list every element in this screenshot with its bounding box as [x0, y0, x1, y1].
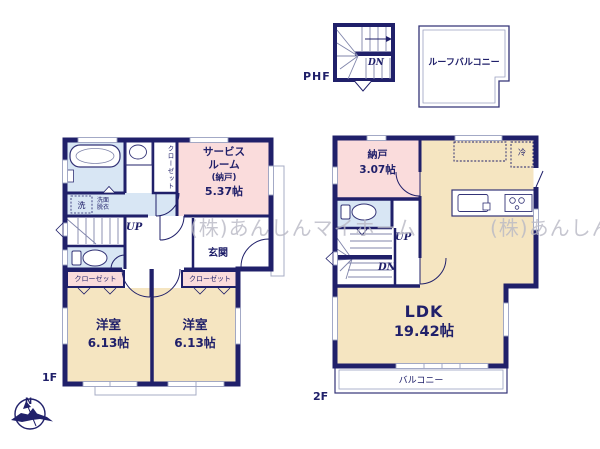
f1-toilet-bowl	[83, 250, 107, 266]
compass-north-label: N	[25, 397, 32, 407]
roof-hatch-mark	[354, 81, 372, 92]
washroom-line2: 脱衣	[97, 205, 109, 212]
f1-washer-label: 洗	[71, 200, 92, 211]
f1-closet-right-label: クローゼット	[182, 271, 238, 287]
phf-floor-label: PHF	[303, 70, 331, 83]
f2-ldk-label: LDK 19.42帖	[379, 302, 469, 342]
phf-dn-label: DN	[368, 58, 384, 68]
bedroom-right-name: 洋室	[152, 316, 238, 334]
bedroom-left-size: 6.13帖	[65, 334, 152, 352]
service-room-size: 5.37帖	[177, 185, 271, 198]
service-room-line1: サービス	[177, 146, 271, 159]
f1-bedroom-left-label: 洋室 6.13帖	[65, 316, 152, 352]
f1-closet-left-label: クローゼット	[67, 271, 124, 287]
watermark-text: (株)あんしんマイホーム	[190, 212, 417, 241]
storage-name: 納戸	[335, 149, 420, 163]
service-room-line3: (納戸)	[177, 172, 271, 185]
f1-toilet-tank	[72, 251, 81, 265]
service-room-line2: ルーム	[177, 159, 271, 172]
watermark-text: (株)あんしんマイホーム	[490, 212, 600, 241]
roof-balcony-label: ルーフバルコニー	[419, 55, 509, 68]
f1-hall-closet-label: クローゼット	[156, 143, 175, 191]
f2-floor-label: 2F	[313, 390, 328, 403]
f1-entrance-label: 玄関	[196, 244, 240, 259]
f1-stairs-up-label: UP	[126, 222, 142, 233]
f2-stairs-dn-label: DN	[378, 262, 396, 273]
fridge-label: 冷	[511, 147, 533, 158]
f2-storage-label: 納戸 3.07帖	[335, 149, 420, 177]
f1-service-room-label: サービス ルーム (納戸) 5.37帖	[177, 146, 271, 198]
bedroom-left-name: 洋室	[65, 316, 152, 334]
f1-bedroom-right-label: 洋室 6.13帖	[152, 316, 238, 352]
f1-washroom-label: 洗面 脱衣	[97, 198, 109, 211]
ldk-size: 19.42帖	[379, 322, 469, 342]
f1-floor-label: 1F	[42, 371, 57, 384]
f2-balcony-label: バルコニー	[381, 373, 461, 386]
bedroom-right-size: 6.13帖	[152, 334, 238, 352]
storage-size: 3.07帖	[335, 163, 420, 177]
ldk-name: LDK	[379, 302, 469, 322]
floorplan: DN PHF ルーフバルコニー 1F クローゼット サービス ルーム (納戸) …	[0, 0, 600, 449]
